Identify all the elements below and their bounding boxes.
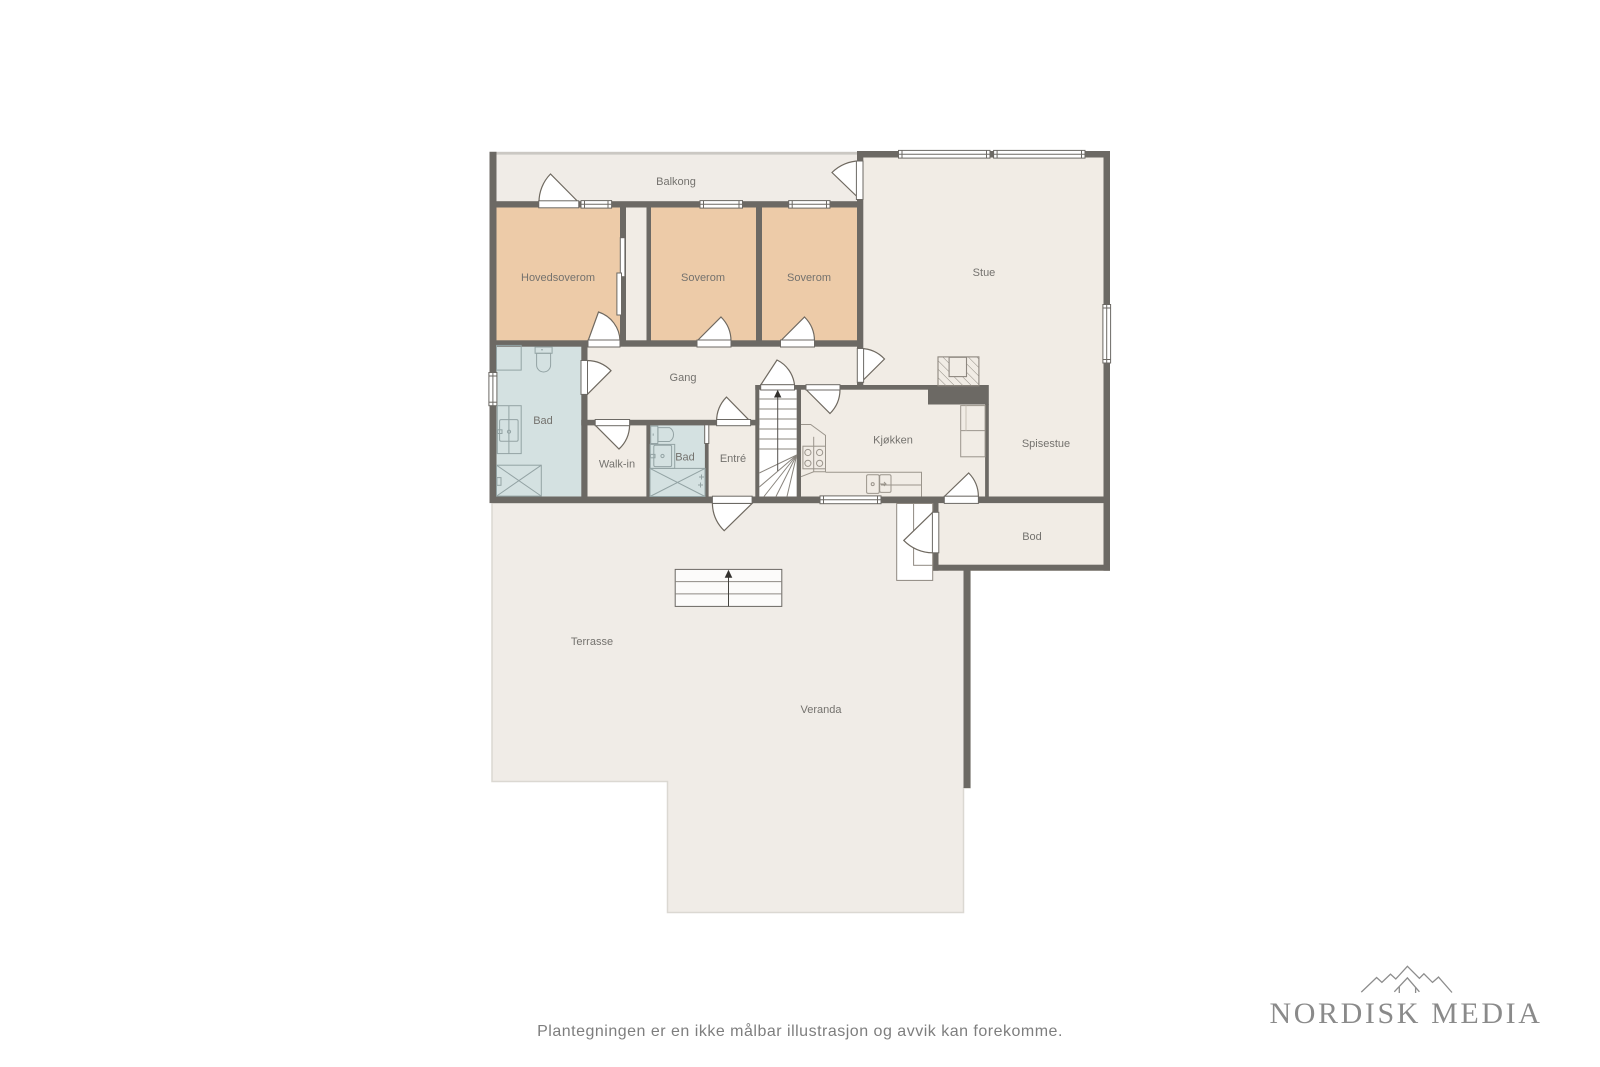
svg-text:Entré: Entré [720,453,746,465]
svg-text:Bod: Bod [1022,531,1042,543]
svg-text:Terrasse: Terrasse [571,636,613,648]
svg-text:Kjøkken: Kjøkken [873,435,913,447]
svg-text:Bad: Bad [533,415,553,427]
svg-text:NORDISK MEDIA: NORDISK MEDIA [1270,997,1543,1030]
svg-text:Gang: Gang [670,372,697,384]
svg-text:Plantegningen er en ikke målba: Plantegningen er en ikke målbar illustra… [537,1022,1063,1040]
svg-text:Spisestue: Spisestue [1022,438,1070,450]
svg-text:Bad: Bad [675,452,695,464]
svg-text:Stue: Stue [973,267,996,279]
svg-text:Soverom: Soverom [681,272,725,284]
svg-text:Veranda: Veranda [801,704,843,716]
svg-text:Walk-in: Walk-in [599,459,635,471]
svg-text:Balkong: Balkong [656,176,696,188]
svg-text:Hovedsoverom: Hovedsoverom [521,272,595,284]
svg-text:Soverom: Soverom [787,272,831,284]
